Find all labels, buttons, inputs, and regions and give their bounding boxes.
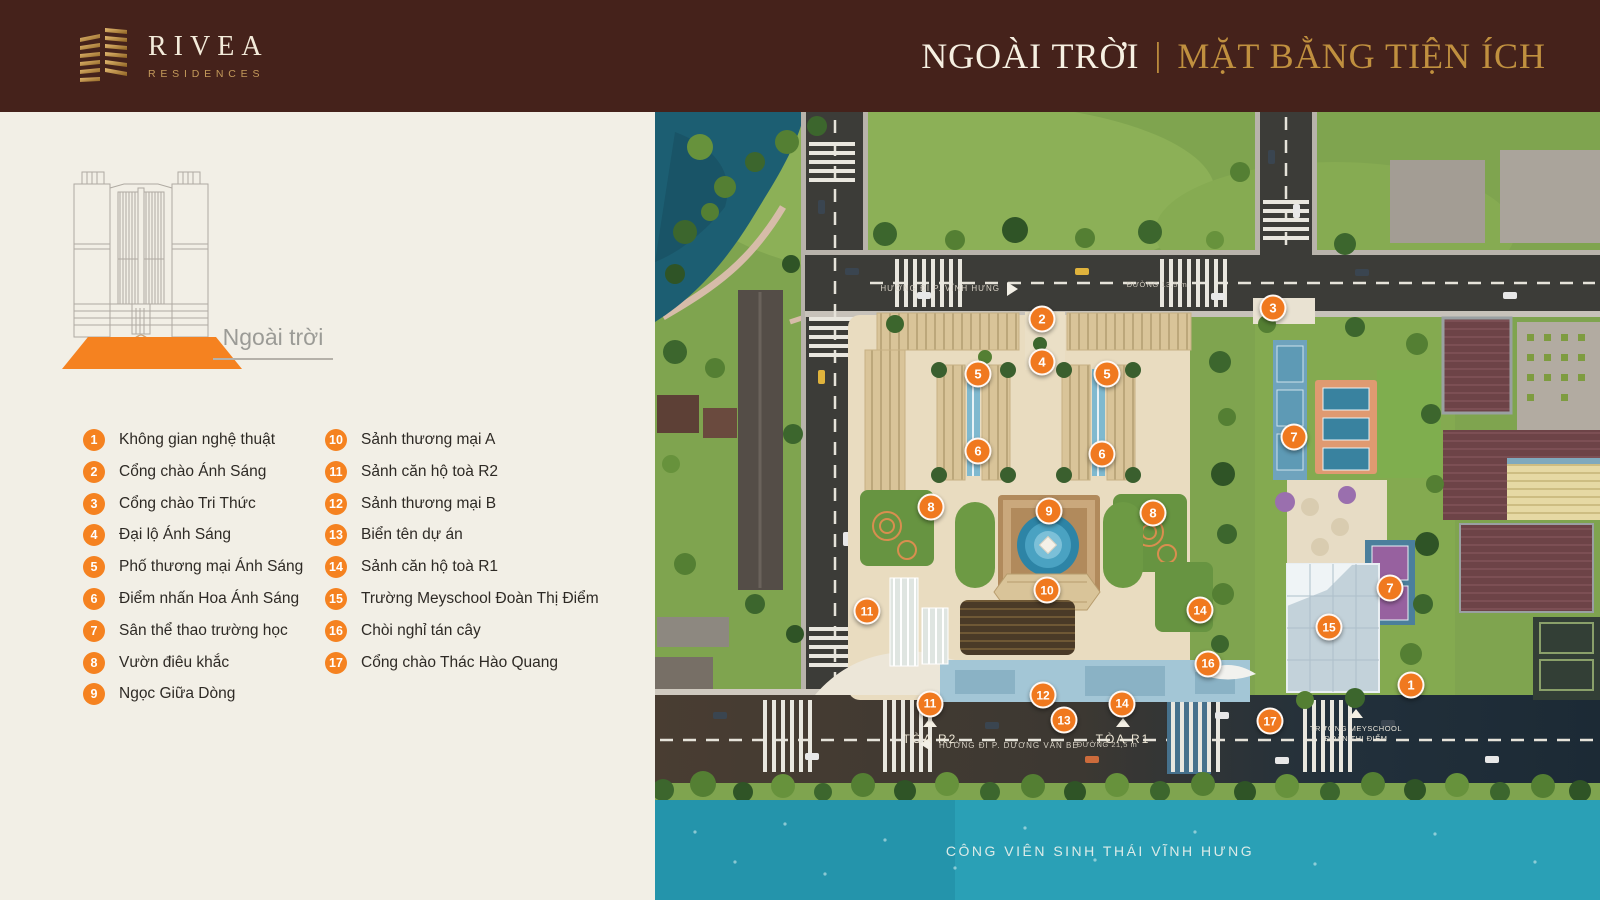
map-marker-8: 8 [918,494,945,521]
eco-park-label: CÔNG VIÊN SINH THÁI VĨNH HƯNG [946,843,1254,859]
legend-item-label: Sân thể thao trường học [119,622,288,640]
legend-item-label: Sảnh thương mại A [361,431,495,449]
tower-r1-label: TÒA R1 [1096,731,1151,746]
legend-item-label: Điểm nhấn Hoa Ánh Sáng [119,590,299,608]
school-label-line1: TRƯỜNG MEYSCHOOL [1310,724,1402,733]
legend-badge: 15 [325,588,347,610]
legend-badge: 5 [83,556,105,578]
legend-badge: 8 [83,652,105,674]
legend-item-label: Phố thương mại Ánh Sáng [119,558,303,576]
map-marker-10: 10 [1034,577,1061,604]
brand: RIVEA RESIDENCES [78,26,269,86]
road-top-direction-label: HƯỚNG ĐI P. VĨNH HƯNG [880,284,1000,293]
map-marker-1: 1 [1398,672,1425,699]
map-marker-11: 11 [917,690,944,717]
site-plan-map: HƯỚNG ĐI P. VĨNH HƯNG ĐƯỜNG 13,5 m HƯỚNG… [655,112,1600,900]
page-title-separator: | [1155,37,1163,75]
map-marker-14: 14 [1187,597,1214,624]
legend-badge: 10 [325,429,347,451]
map-marker-12: 12 [1030,682,1057,709]
legend-item-5: 5Phố thương mại Ánh Sáng [83,556,303,578]
legend-item-label: Cổng chào Ánh Sáng [119,463,266,481]
header-bar: RIVEA RESIDENCES NGOÀI TRỜI | MẶT BẰNG T… [0,0,1600,112]
map-marker-16: 16 [1195,650,1222,677]
brand-subtitle: RESIDENCES [148,68,269,80]
map-marker-5: 5 [1094,360,1121,387]
site-plan-image: HƯỚNG ĐI P. VĨNH HƯNG ĐƯỜNG 13,5 m HƯỚNG… [655,112,1600,900]
legend-item-7: 7Sân thể thao trường học [83,620,303,642]
map-marker-9: 9 [1036,498,1063,525]
school-label-line2: ĐOÀN THỊ ĐIỂM [1324,734,1387,743]
legend-item-label: Chòi nghỉ tán cây [361,622,481,640]
legend-item-label: Trường Meyschool Đoàn Thị Điểm [361,590,599,608]
legend-item-1: 1Không gian nghệ thuật [83,429,303,451]
legend-badge: 4 [83,524,105,546]
legend-badge: 9 [83,683,105,705]
legend-item-11: 11Sảnh căn hộ toà R2 [325,461,599,483]
legend-item-9: 9Ngọc Giữa Dòng [83,683,303,705]
legend-item-label: Không gian nghệ thuật [119,431,275,449]
page-title: NGOÀI TRỜI | MẶT BẰNG TIỆN ÍCH [921,0,1546,112]
legend-item-label: Biển tên dự án [361,526,463,544]
legend-item-label: Sảnh thương mại B [361,495,496,513]
legend-item-label: Ngọc Giữa Dòng [119,685,235,703]
map-marker-7: 7 [1377,575,1404,602]
legend-column-1: 1Không gian nghệ thuật2Cổng chào Ánh Sán… [83,429,303,705]
legend-badge: 17 [325,652,347,674]
legend-item-label: Sảnh căn hộ toà R2 [361,463,498,481]
legend-item-label: Cổng chào Tri Thức [119,495,256,513]
road-top-name-label: ĐƯỜNG 13,5 m [1127,280,1188,289]
map-marker-17: 17 [1257,708,1284,735]
legend-badge: 11 [325,461,347,483]
legend-item-label: Đại lộ Ánh Sáng [119,526,231,544]
legend-column-2: 10Sảnh thương mại A11Sảnh căn hộ toà R21… [325,429,599,674]
map-marker-2: 2 [1029,306,1056,333]
legend-item-4: 4Đại lộ Ánh Sáng [83,524,303,546]
map-marker-15: 15 [1316,614,1343,641]
map-marker-14: 14 [1109,690,1136,717]
legend-item-label: Vườn điêu khắc [119,654,229,672]
brand-name: RIVEA [148,33,269,61]
legend-item-14: 14Sảnh căn hộ toà R1 [325,556,599,578]
map-marker-11: 11 [854,598,881,625]
legend-item-2: 2Cổng chào Ánh Sáng [83,461,303,483]
legend-badge: 1 [83,429,105,451]
legend-item-label: Sảnh căn hộ toà R1 [361,558,498,576]
map-marker-4: 4 [1029,349,1056,376]
legend-badge: 6 [83,588,105,610]
legend-panel: Ngoài trời 1Không gian nghệ thuật2Cổng c… [0,112,655,900]
legend-item-6: 6Điểm nhấn Hoa Ánh Sáng [83,588,303,610]
map-marker-3: 3 [1260,295,1287,322]
rivea-logo-icon [78,26,130,86]
legend-item-16: 16Chòi nghỉ tán cây [325,620,599,642]
legend-item-10: 10Sảnh thương mại A [325,429,599,451]
map-marker-7: 7 [1281,424,1308,451]
map-marker-5: 5 [965,360,992,387]
map-marker-8: 8 [1140,500,1167,527]
legend-badge: 13 [325,524,347,546]
map-marker-6: 6 [965,438,992,465]
legend-item-8: 8Vườn điêu khắc [83,652,303,674]
brand-text: RIVEA RESIDENCES [148,33,269,80]
legend-badge: 7 [83,620,105,642]
legend-badge: 3 [83,493,105,515]
tower-r2-label: TÒA R2 [903,731,958,746]
legend-badge: 14 [325,556,347,578]
legend-badge: 16 [325,620,347,642]
road-bottom-direction-label: HƯỚNG ĐI P. DƯƠNG VĂN BÉ [939,741,1079,750]
page-title-section: NGOÀI TRỜI [921,35,1139,77]
page-title-subject: MẶT BẰNG TIỆN ÍCH [1177,35,1546,77]
legend-item-13: 13Biển tên dự án [325,524,599,546]
legend-item-17: 17Cổng chào Thác Hào Quang [325,652,599,674]
legend-badge: 2 [83,461,105,483]
legend-item-label: Cổng chào Thác Hào Quang [361,654,558,672]
page: RIVEA RESIDENCES NGOÀI TRỜI | MẶT BẰNG T… [0,0,1600,900]
map-marker-13: 13 [1051,707,1078,734]
level-callout: Ngoài trời [213,324,333,360]
legend-item-12: 12Sảnh thương mại B [325,493,599,515]
map-marker-6: 6 [1089,441,1116,468]
legend-item-3: 3Cổng chào Tri Thức [83,493,303,515]
legend-item-15: 15Trường Meyschool Đoàn Thị Điểm [325,588,599,610]
legend-badge: 12 [325,493,347,515]
